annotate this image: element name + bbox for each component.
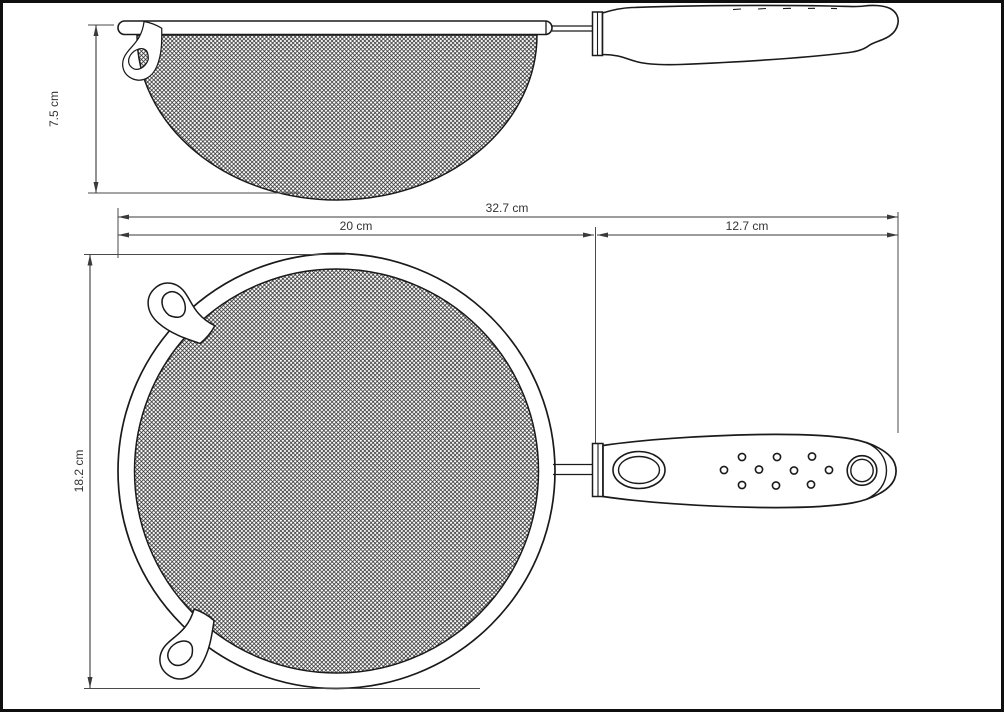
dim-label-top-height: 18.2 cm — [72, 450, 86, 493]
rim-bar — [118, 21, 552, 35]
side-view: 7.5 cm — [47, 5, 898, 200]
side-handle — [603, 5, 899, 64]
dim-label-handle-section: 12.7 cm — [726, 219, 769, 233]
top-connecting-rod — [553, 465, 592, 475]
dim-label-total-length: 32.7 cm — [486, 201, 529, 215]
top-handle — [603, 434, 896, 507]
side-mesh-dome — [137, 35, 537, 200]
top-view: 18.2 cm — [72, 254, 896, 689]
dim-label-bowl-section: 20 cm — [340, 219, 373, 233]
side-connecting-rod — [552, 26, 592, 31]
strainer-dimension-diagram: 7.5 cm 32.7 cm 20 cm 12.7 cm — [0, 0, 1004, 712]
dim-label-side-height: 7.5 cm — [47, 91, 61, 127]
